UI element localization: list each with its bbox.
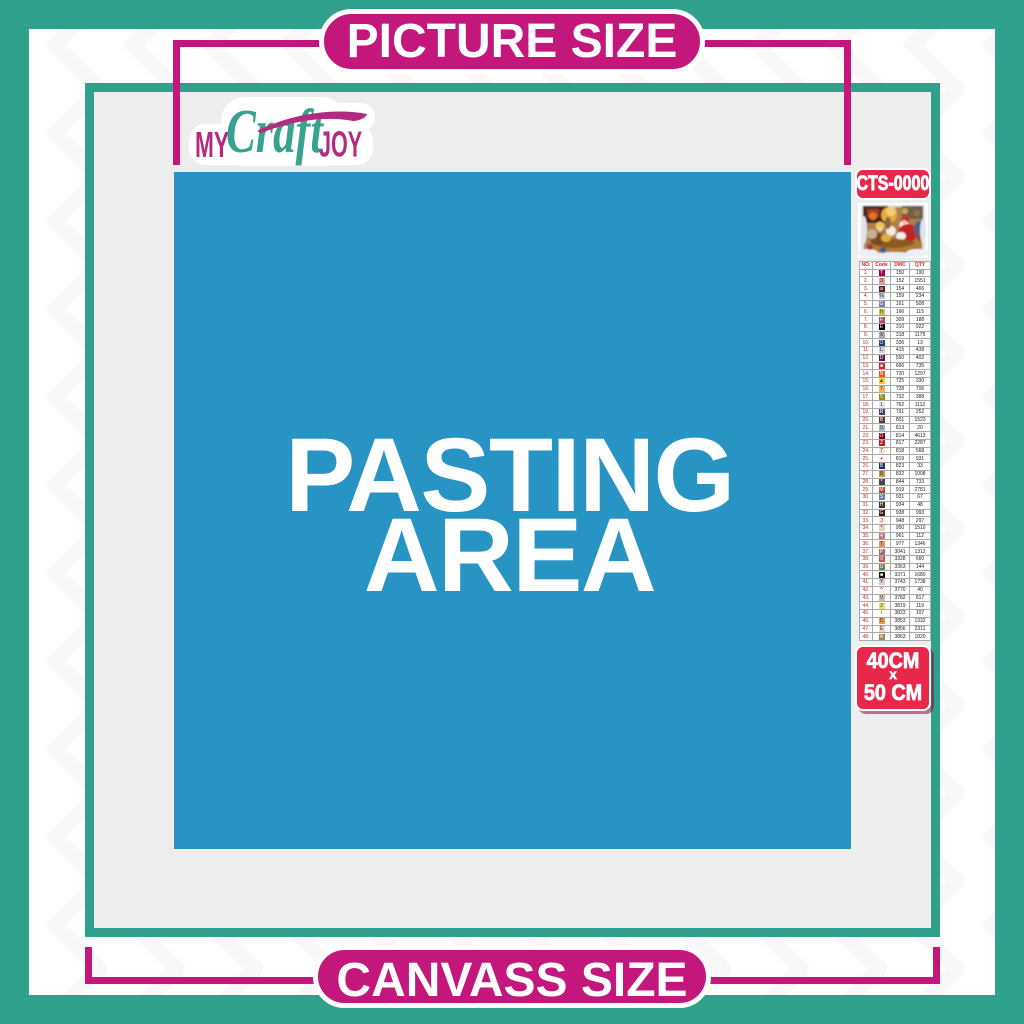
svg-text:JOY: JOY <box>319 125 362 165</box>
svg-text:Craft: Craft <box>226 97 324 166</box>
svg-text:MY: MY <box>195 126 229 165</box>
